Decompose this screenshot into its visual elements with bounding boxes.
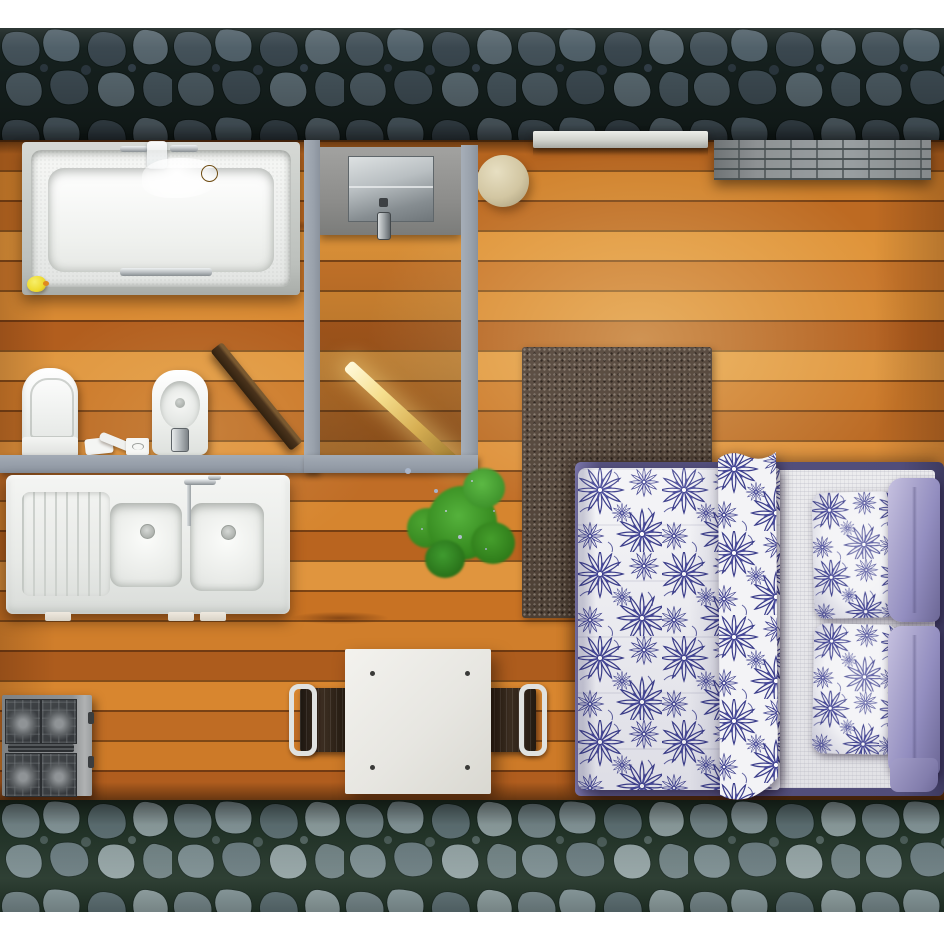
bathtub-faucet-bar-right <box>170 145 198 152</box>
plant-foliage <box>463 468 505 508</box>
plant-foliage <box>471 522 515 564</box>
toilet-seat-outline <box>30 378 74 438</box>
floral-pillow-bottom <box>812 623 899 755</box>
sink-foot <box>168 612 194 621</box>
chair-right-frame <box>519 684 547 756</box>
sink-basin-left <box>110 503 182 587</box>
rubber-duck-beak <box>43 281 49 286</box>
sink-faucet-stem <box>187 484 191 526</box>
duvet-hanging-fold <box>712 447 780 805</box>
lavender-pillow-top <box>888 478 940 622</box>
plant-foliage <box>425 540 465 578</box>
cooktop-control-strip <box>8 744 74 752</box>
chair-left-frame <box>289 684 317 756</box>
brick-bench <box>714 140 931 180</box>
table-screw <box>465 765 470 770</box>
cooktop-hinge <box>88 756 94 768</box>
stone-wall-bottom-shading <box>0 800 944 912</box>
plant-flower-flecks <box>405 468 411 474</box>
partition-wall-shower-west <box>304 140 320 473</box>
toilet-tank <box>22 437 78 457</box>
bidet-faucet <box>171 428 189 452</box>
burner-bottom-left <box>5 753 41 797</box>
round-pouf <box>477 155 529 207</box>
table-screw <box>465 671 470 676</box>
table-screw <box>370 765 375 770</box>
partition-wall-shower-east <box>461 145 478 473</box>
ledge-shadow <box>533 148 708 156</box>
stone-wall-top-shading <box>0 28 944 140</box>
sink-faucet-handle <box>208 475 221 480</box>
sink-drain-left <box>140 524 155 539</box>
cooktop-hinge <box>88 712 94 724</box>
chrome-plate-divider <box>349 186 433 188</box>
gold-drain <box>201 165 218 182</box>
bidet-drain <box>175 398 185 408</box>
potted-plant <box>405 468 517 584</box>
window-ledge <box>533 131 708 148</box>
valve-button <box>379 198 388 207</box>
floral-pillow-top <box>811 491 896 619</box>
flush-valve <box>377 212 391 240</box>
table-screw <box>370 671 375 676</box>
sink-drainboard <box>22 492 110 596</box>
sink-foot <box>200 612 226 621</box>
burner-bottom-right <box>41 753 77 797</box>
burner-top-left <box>5 699 41 744</box>
sink-basin-right <box>190 503 264 591</box>
burner-top-right <box>41 699 77 744</box>
sink-drain-right <box>221 525 236 540</box>
floor-plan-render <box>0 0 944 944</box>
tub-grab-bar <box>120 268 212 276</box>
partition-wall-bathroom-south <box>0 455 318 473</box>
lavender-throw-corner <box>890 758 938 792</box>
chrome-access-plate <box>348 156 434 222</box>
tissue-box-mark <box>132 443 144 450</box>
sink-foot <box>45 612 71 621</box>
lavender-pillow-bottom <box>888 626 940 776</box>
bathtub-faucet-bar-left <box>120 146 148 152</box>
